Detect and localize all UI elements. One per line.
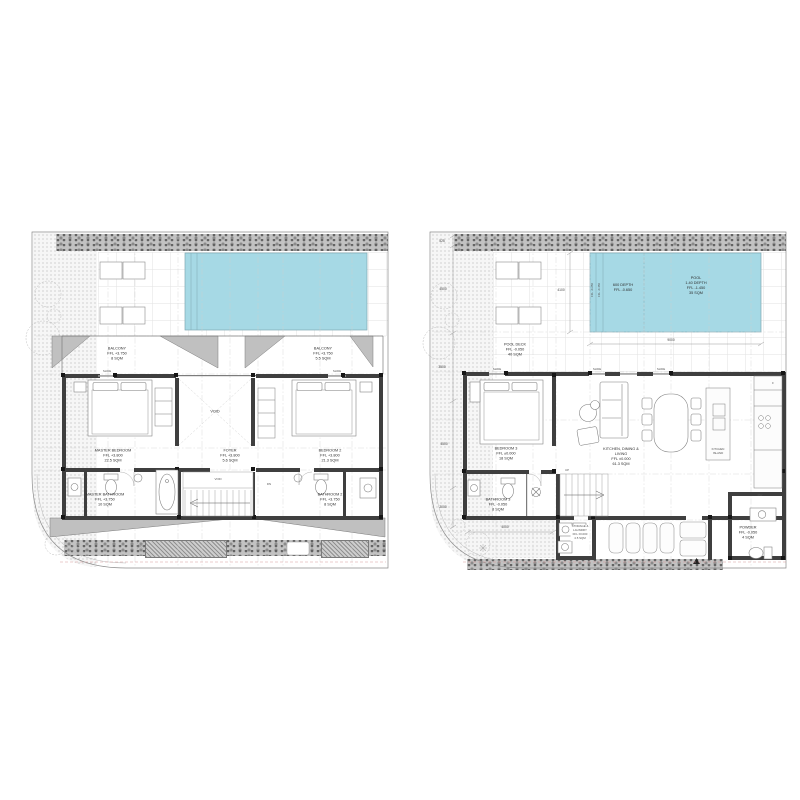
upper-floor-plan: BALCONY FFL +3.750 8 SQM BALCONY FFL +3.… <box>30 228 392 576</box>
staircase <box>560 474 608 516</box>
door-swing <box>529 474 541 486</box>
upper-floor-geometry <box>30 228 392 576</box>
void-label: VOID <box>210 409 219 414</box>
storage-laundry-label: STORAGE & LAUNDRY FFL ±0.000 4.5 SQM <box>571 525 590 541</box>
sun-loungers <box>100 262 145 324</box>
slide-door-label: SLIDE <box>103 370 111 374</box>
master-bathtub <box>156 470 178 514</box>
bathroom3-fixtures <box>468 478 541 499</box>
master-bathroom-label: MASTER BATHROOM FFL +3.750 10 SQM <box>86 492 125 507</box>
drawing-sheet: BALCONY FFL +3.750 8 SQM BALCONY FFL +3.… <box>0 0 800 800</box>
entry-marker <box>693 558 700 564</box>
pool-label: POOL 1.40 DEPTH FFL -1.450 35 SQM <box>685 276 706 297</box>
dim-2000: 2000 <box>439 505 446 509</box>
ground-floor-plan: 525 4500 3500 4500 2000 4100 9000 4000 P… <box>428 228 790 576</box>
dim-pool-width: 4100 <box>557 288 564 292</box>
bedroom3-bed <box>470 380 543 444</box>
bathroom-3-label: BATHROOM 3 FFL -0.050 8 SQM <box>486 497 511 512</box>
slide-door-label: SLIDE <box>657 368 665 372</box>
dim-4500: 4500 <box>439 287 446 291</box>
kitchen <box>706 376 782 488</box>
void-stair-label: VOID <box>214 478 221 482</box>
stair-up-label: UP <box>565 469 569 473</box>
flower-icon <box>479 544 487 552</box>
parked-vehicles <box>609 522 706 556</box>
kitchen-living-label: KITCHEN, DINING & LIVING FFL ±0.000 61.3… <box>603 447 639 468</box>
dim-garden: 4000 <box>501 525 508 529</box>
sofa <box>577 382 628 446</box>
sliding-door <box>489 373 505 375</box>
stair-dn-label: DN <box>267 483 271 487</box>
pool-step2-label: FFL -0.450 <box>598 283 602 297</box>
kitchen-island-label: KITCHEN ISLAND <box>712 448 725 456</box>
flower-icon <box>136 542 144 550</box>
powder-label: POWDER FFL -0.050 4 SQM <box>739 525 757 540</box>
balcony-1-label: BALCONY FFL +3.750 8 SQM <box>107 346 126 361</box>
bedroom-3-label: BEDROOM 3 FFL ±0.000 18 SQM <box>495 446 518 461</box>
slide-door-label: SLIDE <box>333 370 341 374</box>
pool <box>185 253 367 330</box>
fridge-label: F <box>772 382 774 386</box>
dishwasher-label: DW <box>758 494 763 498</box>
pool-deck-label: POOL DECK FFL -0.050 40 SQM <box>504 342 526 357</box>
dim-4500b: 4500 <box>440 442 447 446</box>
sliding-door <box>620 373 637 375</box>
bathroom-2-label: BATHROOM 2 FFL +3.750 8 SQM <box>318 492 343 507</box>
dim-525: 525 <box>439 239 445 243</box>
sliding-door <box>653 373 670 375</box>
ground-floor-geometry <box>428 228 790 576</box>
sun-loungers <box>496 262 541 324</box>
master-bedroom-label: MASTER BEDROOM FFL +3.800 22.5 SQM <box>95 448 132 463</box>
slide-door-label: SLIDE <box>593 368 601 372</box>
master-bed <box>74 380 152 436</box>
dim-3500: 3500 <box>438 365 445 369</box>
bedroom2-bed <box>292 380 372 436</box>
pool-step1-label: FFL -0.250 <box>591 283 595 297</box>
dining-set <box>642 394 701 452</box>
dim-pool-length: 9000 <box>667 338 674 342</box>
stepping-stone <box>287 542 309 555</box>
slide-door-label: SLIDE <box>493 368 501 372</box>
balcony-2-label: BALCONY FFL +3.750 5.5 SQM <box>313 346 332 361</box>
door-swing <box>120 472 134 486</box>
foyer-label: FOYER FFL +3.800 5.6 SQM <box>220 448 239 463</box>
bedroom-2-label: BEDROOM 2 FFL +3.800 21.3 SQM <box>319 448 342 463</box>
pool-shallow-label: 600 DEPTH FFL -0.650 <box>613 283 633 293</box>
